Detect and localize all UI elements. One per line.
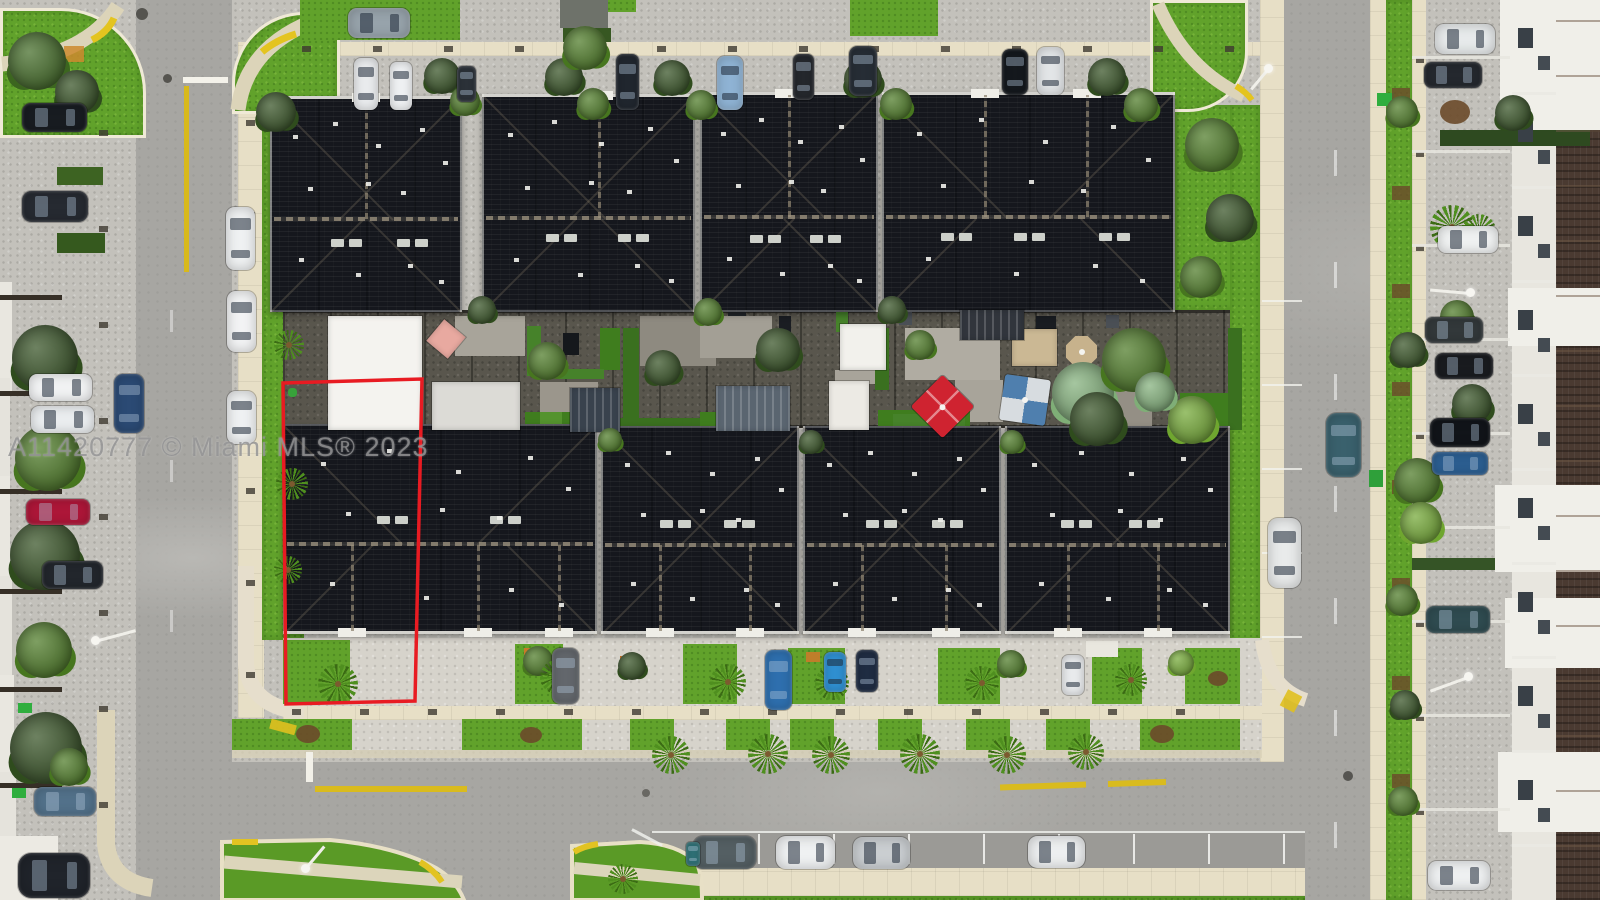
- parked-car: [1435, 24, 1495, 54]
- roof-vent: [299, 258, 304, 262]
- roof-vent: [1106, 597, 1111, 601]
- roof-vent-pair: [395, 516, 408, 524]
- parked-car: [849, 46, 877, 96]
- car-glass: [360, 13, 372, 33]
- ground-detail: [57, 167, 103, 185]
- street-lamp-arm: [95, 629, 136, 643]
- palm-trunk-top: [1004, 752, 1010, 758]
- car-glass: [1447, 357, 1459, 375]
- roof-vent: [938, 518, 943, 522]
- series-mark: [496, 709, 505, 715]
- car-glass: [119, 385, 140, 396]
- roof-ridge-vertical: [861, 545, 864, 631]
- palm-tree: [1115, 664, 1147, 696]
- parked-car: [765, 650, 792, 710]
- palm-tree: [276, 468, 308, 500]
- palm-tree: [748, 734, 788, 774]
- roof-vent: [1140, 279, 1145, 283]
- roof-vent: [690, 597, 695, 601]
- roof-vent: [1050, 513, 1055, 517]
- roof-ridge-vertical: [351, 544, 354, 631]
- series-mark: [1154, 46, 1163, 52]
- roof-vent: [789, 180, 794, 184]
- parked-car: [18, 853, 90, 898]
- roof-unit-seam: [955, 94, 957, 310]
- series-mark: [373, 46, 382, 52]
- roof-vent: [293, 135, 298, 139]
- roof-vent: [1208, 488, 1213, 492]
- series-mark: [1556, 625, 1600, 627]
- parked-car: [390, 62, 412, 110]
- ground-detail: [520, 727, 542, 743]
- roof-vent-pair: [331, 239, 344, 247]
- car-glass: [54, 565, 66, 584]
- car-glass: [706, 841, 719, 863]
- car-glass: [358, 93, 373, 100]
- series-mark: [99, 226, 108, 232]
- roof-vent: [443, 161, 448, 165]
- parked-car: [1037, 47, 1064, 95]
- roof-vent-pair: [1079, 520, 1092, 528]
- roof-vent: [902, 509, 907, 513]
- roof-vent: [1158, 518, 1163, 522]
- car-glass: [854, 80, 872, 87]
- ground-detail: [455, 316, 525, 356]
- car-glass: [231, 302, 251, 313]
- ground-detail: [136, 8, 148, 20]
- ground-detail: [184, 86, 189, 272]
- roof-hip-line: [752, 92, 878, 218]
- tree-canopy: [905, 330, 935, 360]
- car-glass: [1447, 29, 1459, 49]
- parked-car: [1426, 606, 1490, 633]
- roof-hip-line: [481, 219, 576, 314]
- series-mark: [1556, 570, 1600, 572]
- series-mark: [1518, 404, 1533, 424]
- car-glass: [67, 197, 76, 216]
- palm-tree: [965, 666, 999, 700]
- series-mark: [1556, 790, 1600, 792]
- roof-rear-edge: [700, 310, 878, 312]
- ground-detail: [623, 328, 639, 428]
- roof-ridge-vertical: [1067, 545, 1070, 631]
- tree-canopy: [50, 748, 88, 786]
- series-mark: [1512, 92, 1556, 95]
- roof-unit-seam: [642, 96, 644, 310]
- parked-car: [693, 836, 756, 869]
- tree-canopy: [256, 92, 296, 132]
- roof-ridge: [1009, 543, 1226, 547]
- parked-car: [717, 56, 743, 110]
- roof-vent: [1203, 603, 1208, 607]
- roof-vent: [631, 582, 636, 586]
- parked-car: [42, 561, 103, 589]
- roof-vent: [669, 279, 674, 283]
- tree-canopy: [1390, 690, 1420, 720]
- roof-vent-pair: [810, 235, 823, 243]
- tree-canopy: [694, 298, 722, 326]
- roof-vent-pair: [1032, 233, 1045, 241]
- tree-canopy: [1390, 332, 1426, 368]
- parked-car: [853, 837, 910, 869]
- roof-unit-seam: [1102, 94, 1104, 310]
- street-lamp-head: [1466, 288, 1475, 297]
- roof-vent-pair: [564, 234, 577, 242]
- car-glass: [816, 843, 824, 863]
- ground-detail: [1228, 328, 1242, 430]
- parked-car: [1062, 655, 1084, 695]
- parked-car: [226, 207, 255, 270]
- umbrella-pole: [1079, 349, 1085, 355]
- patio-canopy: [840, 324, 886, 370]
- street-lamp-arm: [1430, 676, 1469, 692]
- roof-hip-line: [680, 426, 800, 546]
- series-mark: [1538, 808, 1550, 822]
- roof-vent: [648, 127, 653, 131]
- series-mark: [515, 46, 524, 52]
- roof-parapet: [803, 631, 1001, 634]
- roof-unit-seam: [440, 426, 442, 632]
- car-glass: [859, 658, 874, 666]
- parked-car: [22, 103, 87, 132]
- roof-vent: [514, 258, 519, 262]
- car-glass: [67, 862, 77, 889]
- roof-vent: [666, 451, 671, 455]
- roof-hip-line: [339, 96, 463, 220]
- car-glass: [76, 793, 85, 810]
- parked-car: [29, 374, 92, 401]
- roof-ridge: [605, 543, 795, 547]
- series-mark: [360, 709, 369, 715]
- ground-detail: [288, 388, 297, 397]
- roof-vent-pair: [1014, 233, 1027, 241]
- tree-canopy: [880, 88, 912, 120]
- roof-vent-pair: [397, 239, 410, 247]
- series-mark: [246, 672, 255, 678]
- car-glass: [689, 858, 698, 861]
- series-mark: [1556, 240, 1600, 242]
- series-mark: [758, 834, 760, 864]
- series-mark: [1334, 262, 1337, 288]
- car-glass: [231, 250, 250, 258]
- ground-detail: [0, 589, 62, 594]
- palm-trunk-top: [620, 876, 626, 882]
- tree-canopy: [1386, 584, 1418, 616]
- roof-vent: [736, 184, 741, 188]
- series-mark: [1538, 714, 1550, 728]
- car-glass: [460, 72, 473, 78]
- roof-vent: [625, 463, 630, 467]
- series-mark: [1412, 56, 1510, 59]
- tree-canopy: [654, 60, 690, 96]
- townhouse-roof: [700, 92, 878, 312]
- roof-vent: [456, 470, 461, 474]
- roof-rear-edge: [482, 310, 695, 312]
- roof-vent: [979, 118, 984, 122]
- car-glass: [1470, 867, 1479, 884]
- tree-canopy: [1495, 95, 1531, 131]
- roof-parapet: [601, 631, 799, 634]
- palm-tree: [274, 330, 304, 360]
- townhouse-roof: [482, 94, 695, 312]
- roof-vent: [528, 456, 533, 460]
- roof-vent: [641, 513, 646, 517]
- patio-pergola: [570, 388, 620, 432]
- car-glass: [1273, 531, 1296, 544]
- series-mark: [1556, 460, 1600, 462]
- roof-vent: [366, 182, 371, 186]
- roof-vent: [424, 596, 429, 600]
- palm-trunk-top: [725, 679, 731, 685]
- roof-vent: [333, 122, 338, 126]
- series-mark: [1512, 656, 1556, 659]
- car-glass: [32, 860, 46, 891]
- series-mark: [1392, 186, 1410, 200]
- ground-detail: [642, 789, 650, 797]
- series-mark: [99, 514, 108, 520]
- aerial-photo-townhouse-community: A11420777 © Miami MLS® 2023: [0, 0, 1600, 900]
- roof-vent: [828, 264, 833, 268]
- townhouse-roof: [1005, 426, 1230, 634]
- series-mark: [444, 46, 453, 52]
- parked-car: [34, 787, 96, 816]
- roof-vent: [779, 488, 784, 492]
- car-glass: [557, 686, 574, 693]
- mls-watermark: A11420777 © Miami MLS® 2023: [8, 432, 429, 463]
- parked-car: [227, 291, 256, 352]
- series-mark: [1392, 382, 1410, 396]
- car-glass: [1065, 662, 1080, 669]
- roof-unit-seam: [834, 94, 836, 310]
- car-glass: [722, 93, 739, 100]
- ground-detail: [1208, 671, 1228, 686]
- parked-car: [1002, 49, 1028, 95]
- car-glass: [864, 842, 875, 864]
- palm-trunk-top: [1083, 749, 1089, 755]
- street-lamp-head: [1464, 672, 1473, 681]
- roof-vent-pair: [618, 234, 631, 242]
- series-mark: [1412, 714, 1510, 717]
- roof-vent-pair: [959, 233, 972, 241]
- roof-hip-line: [882, 426, 1002, 546]
- series-mark: [1392, 676, 1410, 690]
- roof-ridge: [807, 543, 997, 547]
- roof-ridge-vertical: [365, 99, 368, 219]
- tree-canopy: [618, 652, 646, 680]
- series-mark: [1176, 709, 1185, 715]
- ground-detail: [560, 0, 608, 28]
- car-glass: [1479, 231, 1487, 247]
- parked-car: [26, 499, 90, 525]
- roof-vent-pair: [678, 520, 691, 528]
- parked-car: [1435, 353, 1493, 379]
- roof-vent: [1039, 582, 1044, 586]
- ground-detail: [540, 412, 562, 424]
- roof-vent: [981, 488, 986, 492]
- parked-car: [616, 54, 639, 110]
- parked-car: [1428, 861, 1490, 890]
- car-glass: [620, 92, 635, 99]
- roof-vent: [860, 158, 865, 162]
- roof-vent: [843, 513, 848, 517]
- tree-canopy: [1388, 786, 1418, 816]
- roof-vent: [755, 457, 760, 461]
- roof-vent: [1081, 189, 1086, 193]
- series-mark: [1512, 280, 1556, 283]
- ground-detail: [1369, 470, 1383, 487]
- series-mark: [246, 120, 255, 126]
- roof-vent: [356, 273, 361, 277]
- car-glass: [1436, 66, 1448, 84]
- car-glass: [1331, 425, 1356, 437]
- street-lamp-head: [301, 864, 310, 873]
- car-glass: [796, 62, 811, 70]
- roof-vent-pair: [1117, 233, 1130, 241]
- car-glass: [1039, 841, 1050, 863]
- car-glass: [619, 64, 635, 74]
- ground-detail: [306, 752, 313, 782]
- roof-vent: [892, 597, 897, 601]
- palm-tree: [900, 734, 940, 774]
- parked-car: [776, 836, 835, 869]
- tree-canopy: [756, 328, 800, 372]
- series-mark: [1512, 186, 1556, 189]
- roof-vent: [497, 516, 502, 520]
- tree-canopy: [1185, 118, 1239, 172]
- roof-hip-line: [600, 545, 691, 636]
- parked-car: [1432, 452, 1488, 475]
- series-mark: [1108, 709, 1117, 715]
- palm-tree: [274, 556, 302, 584]
- tree-canopy: [878, 296, 906, 324]
- roof-vent: [1093, 264, 1098, 268]
- roof-vent: [346, 512, 351, 516]
- roof-vent: [376, 144, 381, 148]
- car-glass: [1007, 80, 1024, 86]
- car-glass: [230, 218, 250, 229]
- roof-vent: [1043, 140, 1048, 144]
- tree-canopy: [1180, 256, 1222, 298]
- townhouse-roof: [270, 96, 462, 312]
- ground-detail: [315, 786, 467, 792]
- car-glass: [1440, 866, 1452, 886]
- street-lamp-head: [91, 636, 100, 645]
- ground-detail: [0, 295, 62, 300]
- series-mark: [1512, 844, 1556, 847]
- roof-vent: [1181, 457, 1186, 461]
- tree-canopy: [16, 622, 72, 678]
- tree-canopy: [468, 296, 496, 324]
- car-glass: [1474, 358, 1482, 374]
- palm-trunk-top: [1128, 677, 1134, 683]
- series-mark: [302, 46, 311, 52]
- ground-detail: [0, 687, 62, 692]
- roof-vent: [420, 128, 425, 132]
- ground-detail: [1086, 641, 1118, 657]
- ground-detail: [1150, 725, 1174, 743]
- roof-vent: [599, 142, 604, 146]
- car-glass: [231, 401, 251, 411]
- roof-vent: [674, 159, 679, 163]
- series-mark: [1556, 515, 1600, 517]
- parked-car: [354, 58, 378, 110]
- roof-hip-line: [477, 424, 598, 545]
- series-mark: [564, 709, 573, 715]
- car-glass: [35, 196, 48, 217]
- series-mark: [1512, 562, 1556, 565]
- townhouse-roof: [882, 92, 1175, 312]
- roof-vent: [1014, 272, 1019, 276]
- parked-car: [686, 842, 700, 866]
- roof-vent-pair: [866, 520, 879, 528]
- tree-canopy: [563, 26, 607, 70]
- roof-vent-pair: [742, 520, 755, 528]
- roof-vent: [589, 181, 594, 185]
- roof-vent: [509, 588, 514, 592]
- car-glass: [797, 85, 810, 91]
- roof-vent: [508, 133, 513, 137]
- series-mark: [1512, 750, 1556, 753]
- roof-vent: [827, 463, 832, 467]
- series-mark: [99, 610, 108, 616]
- roof-hip-line: [1140, 545, 1231, 636]
- tree-canopy: [1168, 650, 1194, 676]
- roof-vent: [926, 257, 931, 261]
- tree-canopy: [1206, 194, 1254, 242]
- car-glass: [892, 843, 900, 862]
- roof-ridge: [486, 216, 691, 220]
- car-glass: [1470, 457, 1478, 471]
- roof-vent: [917, 132, 922, 136]
- roof-vent: [1111, 125, 1116, 129]
- car-glass: [853, 55, 873, 64]
- parked-car: [22, 191, 88, 222]
- roof-vent: [308, 187, 313, 191]
- roof-rear-edge: [882, 310, 1175, 312]
- parked-car: [1424, 62, 1482, 88]
- car-glass: [736, 843, 745, 863]
- series-mark: [1518, 28, 1533, 48]
- car-glass: [860, 679, 874, 684]
- ground-detail: [1108, 779, 1166, 787]
- series-mark: [1133, 834, 1135, 864]
- tree-canopy: [1400, 502, 1442, 544]
- series-mark: [799, 46, 808, 52]
- roof-vent-pair: [768, 235, 781, 243]
- ground-detail: [57, 233, 105, 253]
- series-mark: [1556, 680, 1600, 682]
- palm-tree: [652, 736, 690, 774]
- series-mark: [1538, 150, 1550, 164]
- roof-vent: [912, 472, 917, 476]
- roof-vent: [721, 132, 726, 136]
- series-mark: [170, 460, 173, 482]
- car-glass: [1439, 610, 1452, 628]
- patio-umbrella-quad: [999, 374, 1051, 426]
- tree-canopy: [645, 350, 681, 386]
- series-mark: [700, 709, 709, 715]
- car-glass: [66, 109, 75, 126]
- roof-vent: [635, 264, 640, 268]
- palm-trunk-top: [286, 342, 292, 348]
- parked-car: [856, 650, 878, 692]
- series-mark: [1556, 735, 1600, 737]
- palm-trunk-top: [285, 567, 291, 573]
- palm-tree: [608, 864, 638, 894]
- roof-vent: [330, 582, 335, 586]
- tree-canopy: [598, 428, 622, 452]
- series-mark: [1556, 20, 1600, 22]
